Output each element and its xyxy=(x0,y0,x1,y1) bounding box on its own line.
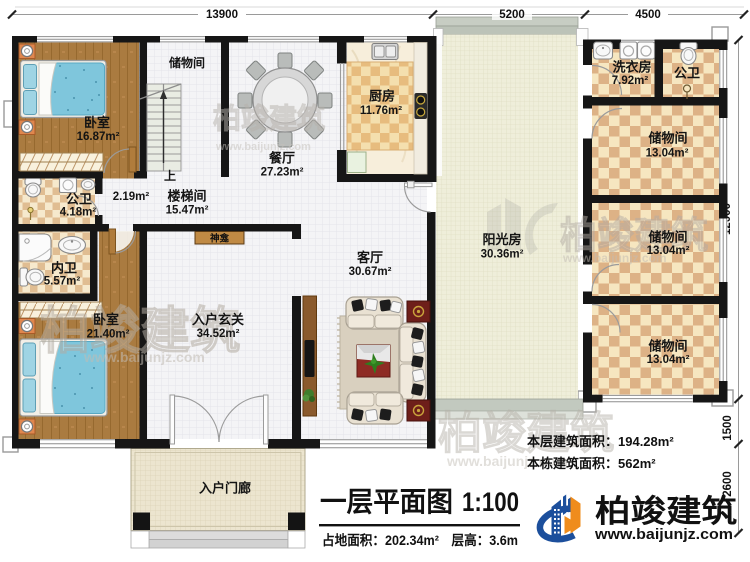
svg-text:5200: 5200 xyxy=(499,9,525,21)
svg-text:客厅: 客厅 xyxy=(357,250,383,265)
svg-text:卧室: 卧室 xyxy=(84,115,110,130)
svg-text:4.18m²: 4.18m² xyxy=(60,207,97,219)
svg-text:1:100: 1:100 xyxy=(462,487,519,517)
svg-text:占地面积：202.34m² 层高：3.6m: 占地面积：202.34m² 层高：3.6m xyxy=(322,532,518,548)
svg-text:15.47m²: 15.47m² xyxy=(166,205,209,217)
svg-text:13900: 13900 xyxy=(206,9,238,21)
svg-text:4500: 4500 xyxy=(635,9,661,21)
svg-text:入户玄关: 入户玄关 xyxy=(192,312,244,327)
svg-text:30.36m²: 30.36m² xyxy=(481,249,524,261)
svg-text:13.04m²: 13.04m² xyxy=(647,245,690,257)
svg-text:www.baijunjz.com: www.baijunjz.com xyxy=(83,349,205,365)
svg-text:11.76m²: 11.76m² xyxy=(360,105,402,117)
svg-text:公卫: 公卫 xyxy=(674,66,700,81)
svg-text:27.23m²: 27.23m² xyxy=(261,167,304,179)
svg-text:楼梯间: 楼梯间 xyxy=(167,189,206,204)
svg-text:储物间: 储物间 xyxy=(647,131,687,146)
svg-text:厨房: 厨房 xyxy=(369,89,395,104)
svg-text:卧室: 卧室 xyxy=(93,312,119,327)
svg-text:本栋建筑面积：562m²: 本栋建筑面积：562m² xyxy=(527,456,656,471)
svg-text:储物间: 储物间 xyxy=(647,230,687,245)
svg-text:餐厅: 餐厅 xyxy=(268,151,295,166)
svg-text:入户门廊: 入户门廊 xyxy=(199,481,251,496)
svg-text:内卫: 内卫 xyxy=(51,261,77,276)
svg-text:神龛: 神龛 xyxy=(210,233,230,245)
svg-text:阳光房: 阳光房 xyxy=(482,232,521,247)
svg-text:一层平面图: 一层平面图 xyxy=(320,486,453,517)
svg-text:柏竣建筑: 柏竣建筑 xyxy=(595,494,737,529)
svg-text:洗衣房: 洗衣房 xyxy=(612,60,651,75)
svg-text:1500: 1500 xyxy=(722,415,734,441)
svg-text:上: 上 xyxy=(164,168,176,183)
svg-text:30.67m²: 30.67m² xyxy=(349,266,392,278)
svg-text:2600: 2600 xyxy=(722,471,734,497)
svg-text:储物间: 储物间 xyxy=(169,55,205,70)
svg-text:柏竣建筑: 柏竣建筑 xyxy=(213,102,325,134)
svg-text:2.19m²: 2.19m² xyxy=(113,191,150,203)
svg-text:www.baijunjz.com: www.baijunjz.com xyxy=(215,141,311,153)
svg-text:储物间: 储物间 xyxy=(647,339,687,354)
svg-text:5.57m²: 5.57m² xyxy=(44,276,81,288)
svg-text:7.92m²: 7.92m² xyxy=(612,75,649,87)
svg-text:公卫: 公卫 xyxy=(66,192,92,207)
svg-text:21.40m²: 21.40m² xyxy=(87,329,130,341)
svg-text:34.52m²: 34.52m² xyxy=(197,328,240,340)
svg-text:本层建筑面积：194.28m²: 本层建筑面积：194.28m² xyxy=(527,434,674,449)
svg-text:13.04m²: 13.04m² xyxy=(646,148,689,160)
svg-text:16.87m²: 16.87m² xyxy=(77,131,120,143)
svg-text:13.04m²: 13.04m² xyxy=(647,354,690,366)
svg-text:www.baijunjz.com: www.baijunjz.com xyxy=(594,527,733,543)
